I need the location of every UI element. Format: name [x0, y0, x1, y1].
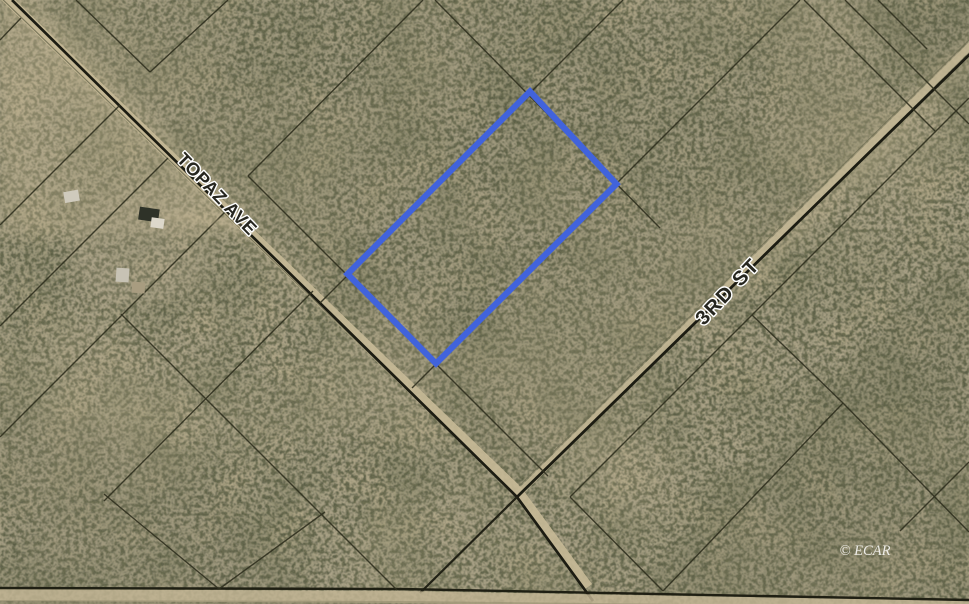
svg-text:© ECAR: © ECAR: [840, 543, 891, 559]
